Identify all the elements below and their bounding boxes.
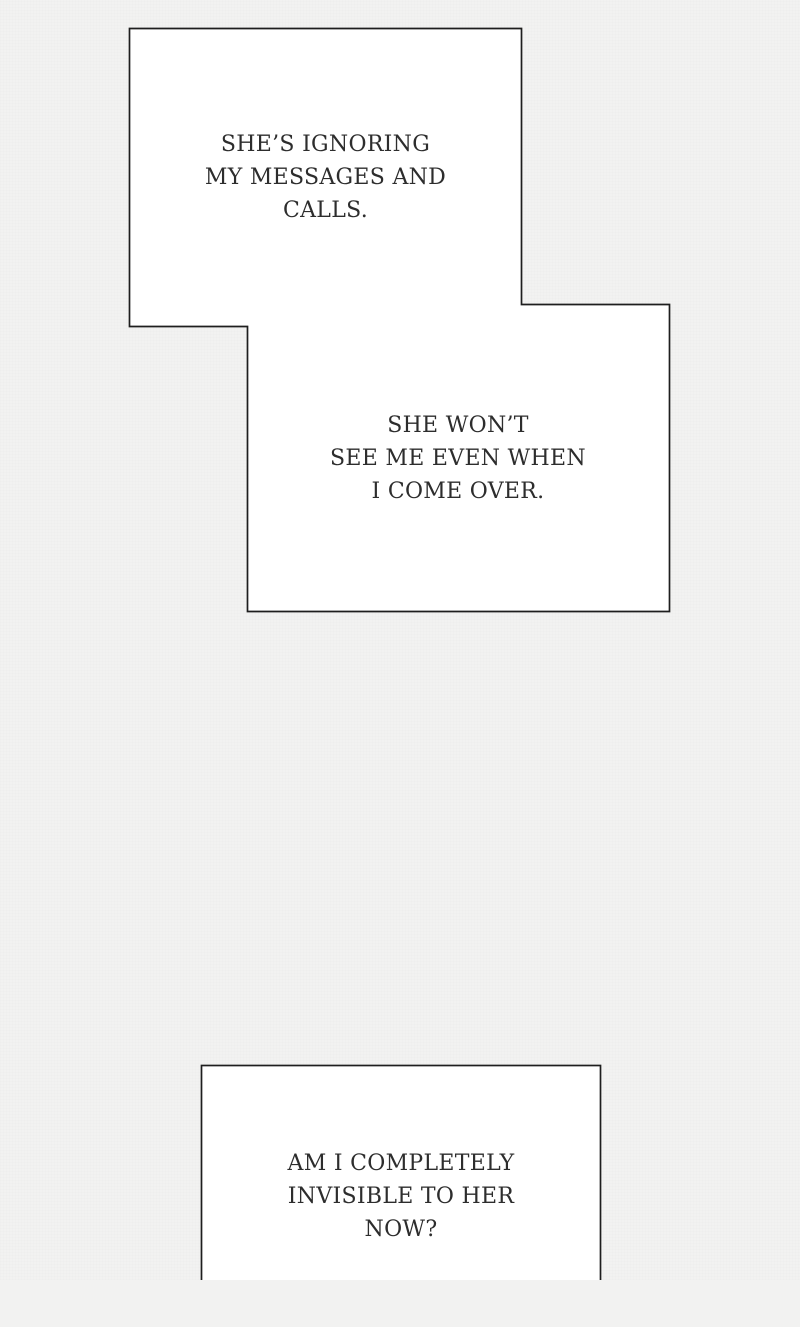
narration-line: MY MESSAGES AND (205, 161, 446, 194)
narration-line: I COME OVER. (372, 475, 545, 508)
narration-line: SHE WON’T (387, 409, 529, 442)
narration-line: INVISIBLE TO HER (288, 1180, 514, 1213)
narration-box-2: SHE WON’T SEE ME EVEN WHEN I COME OVER. (247, 305, 669, 612)
narration-box-1: SHE’S IGNORING MY MESSAGES AND CALLS. (129, 28, 522, 327)
narration-line: SHE’S IGNORING (221, 128, 430, 161)
narration-line: CALLS. (283, 194, 368, 227)
narration-line: SEE ME EVEN WHEN (330, 442, 586, 475)
narration-box-3: AM I COMPLETELY INVISIBLE TO HER NOW? (201, 1065, 601, 1327)
narration-line: AM I COMPLETELY (288, 1147, 515, 1180)
narration-line: NOW? (365, 1213, 438, 1246)
